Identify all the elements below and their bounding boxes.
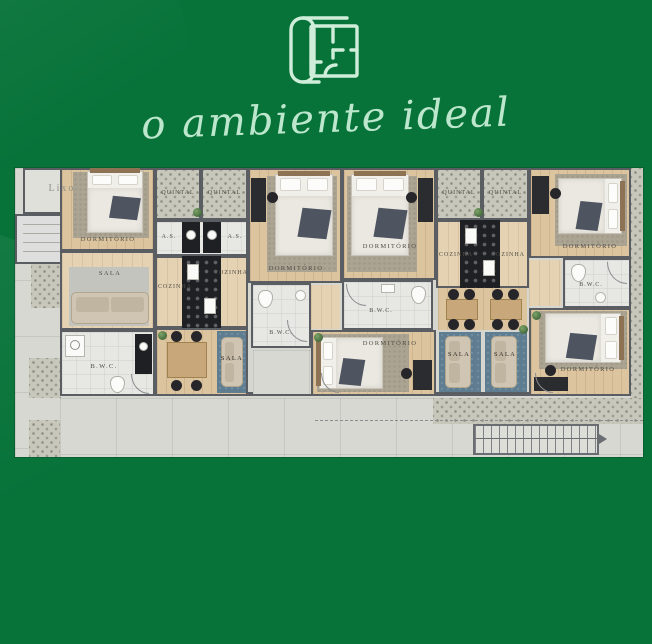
chair (267, 192, 278, 203)
label-dormitorio: DORMITÓRIO (552, 244, 628, 251)
plant (474, 208, 483, 217)
plant (314, 333, 323, 342)
chair (448, 289, 459, 300)
label-dormitorio: DORMITÓRIO (347, 244, 433, 251)
label-sala: SALA (75, 271, 145, 278)
sofa (445, 336, 471, 388)
chair (508, 289, 519, 300)
label-quintal: QUINTAL (202, 190, 247, 196)
stairs (473, 424, 599, 455)
bed (558, 178, 622, 234)
washer-door (70, 340, 80, 350)
tagline: o ambiente ideal (0, 85, 652, 154)
label-bwc: B.W.C. (73, 364, 135, 371)
side-strip (631, 168, 643, 408)
label-dormitorio: DORMITÓRIO (63, 237, 153, 244)
bed (545, 313, 621, 363)
plant (532, 311, 541, 320)
chair (191, 380, 202, 391)
chair (401, 368, 412, 379)
label-bwc: B.W.C. (567, 282, 615, 288)
sofa (491, 336, 517, 388)
kitchen-sink (187, 264, 199, 280)
label-dormitorio: DORMITÓRIO (549, 367, 627, 374)
chair (492, 319, 503, 330)
label-cozinha: COZINHA (208, 270, 254, 276)
sink (295, 290, 306, 301)
bed (275, 174, 333, 256)
label-cozinha: COZINHA (433, 252, 479, 258)
chair (171, 331, 182, 342)
hallway (311, 285, 340, 329)
label-bwc: B.W.C. (255, 330, 307, 336)
label-quintal: QUINTAL (156, 190, 200, 196)
stairs-rail (475, 438, 597, 439)
dining-table (167, 342, 207, 378)
walkway-pattern-tile (29, 358, 61, 398)
blueprint-scroll-icon (281, 8, 371, 88)
kitchen-sink (465, 228, 477, 244)
washer-door (207, 230, 217, 240)
chair (508, 319, 519, 330)
label-as: A.S. (158, 234, 180, 240)
chair (492, 289, 503, 300)
sofa (71, 292, 149, 324)
chair (464, 319, 475, 330)
chair (448, 319, 459, 330)
label-sala: SALA (214, 356, 250, 363)
plant (158, 331, 167, 340)
label-sala: SALA (438, 352, 480, 359)
desk (532, 176, 549, 214)
poster: o ambiente ideal Lixo DORMITÓRIO SALA (0, 0, 652, 514)
sink (381, 284, 395, 293)
dining-table (446, 299, 478, 320)
label-cozinha: COZINHA (151, 284, 199, 290)
label-dormitorio: DORMITÓRIO (253, 266, 339, 273)
washer-door (186, 230, 196, 240)
kitchen-sink (204, 298, 216, 314)
stairs-arrow-icon (599, 434, 607, 444)
plant (193, 208, 202, 217)
label-lixo: Lixo (25, 184, 99, 194)
desk (413, 360, 432, 390)
sink (139, 342, 148, 351)
floor-plan: Lixo DORMITÓRIO SALA B.W.C. QUINTAL QUIN… (15, 168, 643, 457)
desk (418, 178, 433, 222)
chair (406, 192, 417, 203)
chair (550, 188, 561, 199)
corridor (253, 350, 311, 394)
bed (87, 171, 143, 233)
hallway (529, 260, 561, 306)
label-as: A.S. (224, 234, 246, 240)
label-bwc: B.W.C. (355, 308, 407, 314)
chair (191, 331, 202, 342)
desk (251, 178, 266, 222)
label-dormitorio: DORMITÓRIO (349, 341, 431, 348)
bath-counter (135, 334, 152, 374)
label-sala: SALA (484, 352, 526, 359)
dining-table (490, 299, 522, 320)
chair (464, 289, 475, 300)
chair (171, 380, 182, 391)
label-quintal: QUINTAL (483, 190, 528, 196)
bike-rack (23, 224, 63, 252)
sink (595, 292, 606, 303)
plant (519, 325, 528, 334)
kitchen-sink (483, 260, 495, 276)
property-line (315, 420, 643, 421)
label-cozinha: COZINHA (485, 252, 531, 258)
label-quintal: QUINTAL (437, 190, 481, 196)
